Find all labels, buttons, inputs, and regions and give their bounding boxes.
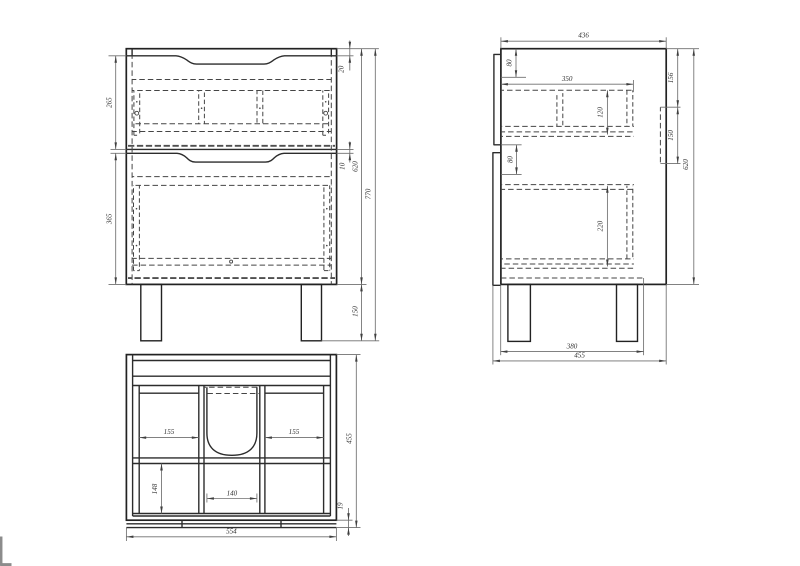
svg-text:140: 140 [227,489,238,497]
svg-text:455: 455 [345,433,353,444]
svg-text:20: 20 [338,65,346,73]
svg-text:10: 10 [338,162,346,170]
svg-text:80: 80 [505,59,513,67]
svg-text:155: 155 [289,428,300,436]
svg-text:620: 620 [352,161,360,172]
svg-text:554: 554 [226,528,237,536]
svg-text:620: 620 [682,159,690,170]
svg-text:455: 455 [574,352,585,360]
svg-text:156: 156 [667,72,675,83]
svg-text:436: 436 [578,32,589,40]
svg-text:365: 365 [106,213,114,225]
svg-text:155: 155 [164,428,175,436]
svg-text:265: 265 [106,97,114,108]
svg-text:150: 150 [352,306,360,317]
svg-text:380: 380 [566,342,578,350]
svg-text:148: 148 [151,483,159,494]
svg-text:350: 350 [561,75,573,83]
svg-text:120: 120 [596,107,604,118]
svg-text:19: 19 [336,502,344,510]
svg-text:150: 150 [667,130,675,141]
svg-text:80: 80 [507,156,515,164]
svg-text:770: 770 [364,188,372,199]
svg-text:220: 220 [596,220,604,231]
